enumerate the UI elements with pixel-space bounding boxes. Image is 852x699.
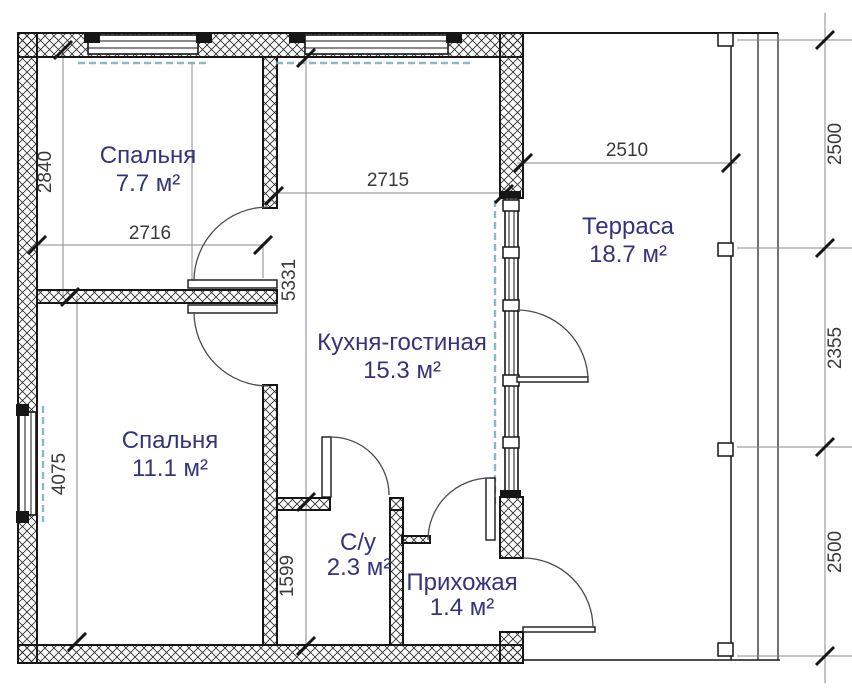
room-label-bathroom: С/у <box>340 529 376 556</box>
wall-left <box>18 33 37 663</box>
door-bathroom <box>322 437 389 497</box>
door-hallway-kitchen <box>428 478 495 540</box>
dim-bedroom1-width: 2716 <box>129 223 171 244</box>
room-label-bedroom1: Спальня <box>100 142 196 169</box>
door-terrace <box>517 310 588 382</box>
room-label-kitchen: Кухня-гостиная <box>317 329 487 356</box>
room-area-bedroom2: 11.1 м² <box>132 455 208 482</box>
window-bedroom2 <box>16 404 36 523</box>
floor-plan-page: 2716 2715 2510 2840 5331 4075 1599 2500 … <box>0 0 852 699</box>
wall-hallway-step <box>402 536 430 543</box>
mullion <box>503 300 519 311</box>
room-area-bedroom1: 7.7 м² <box>116 170 181 197</box>
room-area-terrace: 18.7 м² <box>589 241 667 268</box>
room-label-hallway: Прихожая <box>406 569 517 596</box>
window-bedroom1 <box>84 33 212 54</box>
room-area-bathroom: 2.3 м² <box>327 554 392 581</box>
door-bedroom1 <box>188 207 277 288</box>
wall-right-middle <box>500 497 523 558</box>
door-entrance <box>523 558 595 632</box>
dim-bedroom2-height: 4075 <box>49 453 70 495</box>
wall-right-top <box>500 33 523 198</box>
terrace-deck <box>523 33 780 660</box>
terrace-post <box>718 443 733 456</box>
wall-interior-vertical-lower <box>263 385 277 645</box>
mullion <box>503 247 519 258</box>
mullion <box>503 200 519 211</box>
room-label-terrace: Терраса <box>582 213 675 240</box>
room-label-bedroom2: Спальня <box>122 427 218 454</box>
dim-bedroom1-height: 2840 <box>35 151 56 193</box>
terrace-post <box>718 643 733 656</box>
door-bedroom2 <box>188 305 277 386</box>
dim-terrace-right-top: 2500 <box>825 123 846 165</box>
wall-bathroom-right <box>390 510 403 645</box>
wall-bottom <box>18 645 523 663</box>
room-area-kitchen: 15.3 м² <box>363 357 441 384</box>
floor-plan-svg: 2716 2715 2510 2840 5331 4075 1599 2500 … <box>0 0 852 699</box>
terrace-post <box>718 243 733 256</box>
dim-bathroom-height: 1599 <box>277 555 298 597</box>
room-area-hallway: 1.4 м² <box>430 594 495 621</box>
dim-terrace-width: 2510 <box>606 140 648 161</box>
wall-right-bottom <box>500 632 523 663</box>
dim-kitchen-width: 2715 <box>367 170 409 191</box>
dim-terrace-right-bottom: 2500 <box>825 531 846 573</box>
wall-bathroom-top-right <box>390 498 403 510</box>
wall-interior-vertical-upper <box>263 57 277 208</box>
dim-terrace-right-middle: 2355 <box>825 327 846 369</box>
mullion <box>503 437 519 448</box>
window-wall-terrace <box>500 191 521 497</box>
dim-kitchen-length: 5331 <box>279 259 300 301</box>
terrace-post <box>718 33 733 46</box>
